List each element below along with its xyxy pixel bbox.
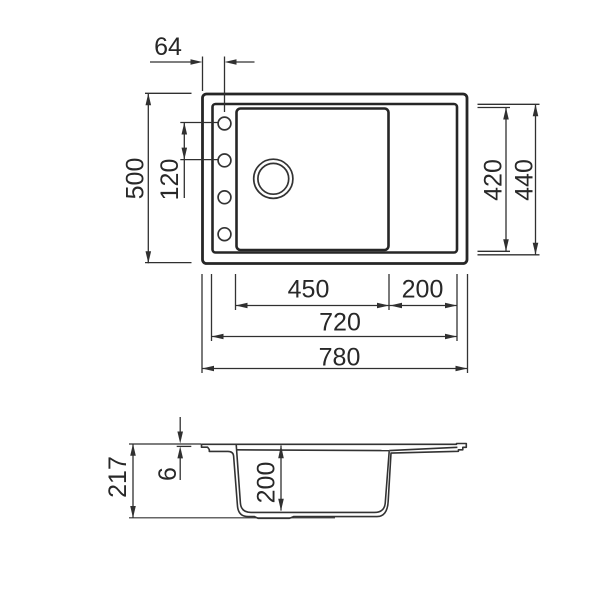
svg-text:780: 780 (319, 344, 361, 372)
svg-text:200: 200 (253, 462, 281, 504)
svg-text:200: 200 (402, 276, 444, 304)
svg-text:120: 120 (156, 159, 184, 201)
svg-text:6: 6 (154, 467, 182, 481)
svg-text:64: 64 (154, 33, 182, 61)
svg-text:450: 450 (288, 276, 330, 304)
svg-text:217: 217 (104, 456, 132, 498)
svg-text:440: 440 (511, 159, 539, 201)
svg-text:500: 500 (122, 158, 150, 200)
svg-text:720: 720 (319, 309, 361, 337)
svg-text:420: 420 (480, 159, 508, 201)
